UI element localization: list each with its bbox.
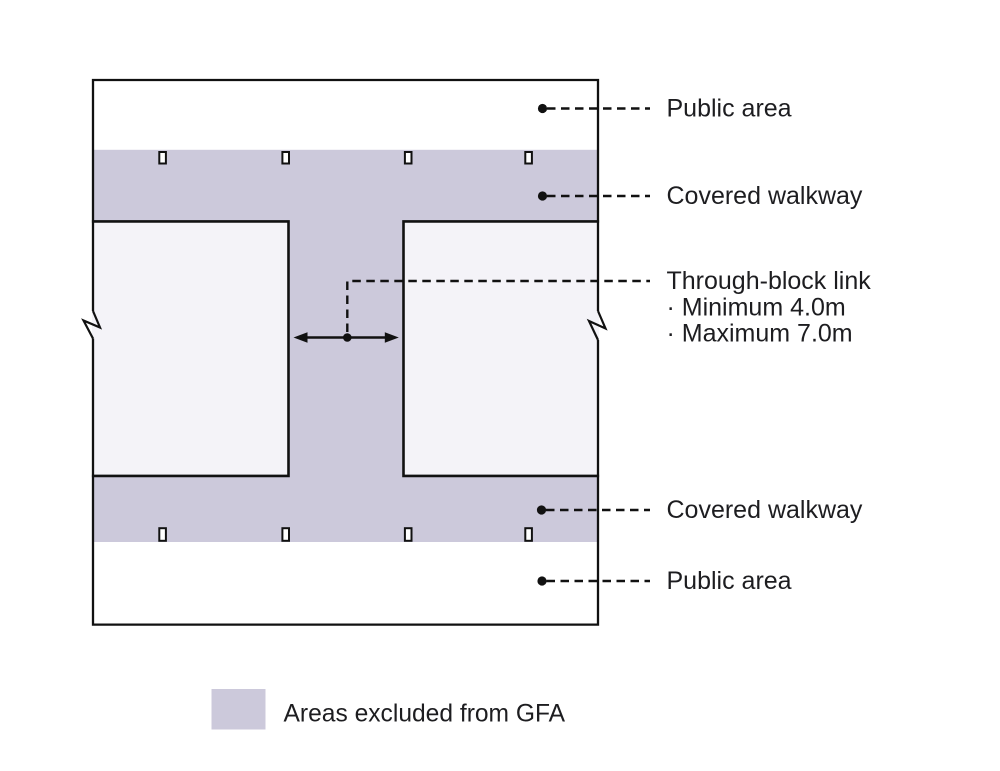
svg-text:Public area: Public area xyxy=(667,95,792,123)
svg-text:Areas excluded from GFA: Areas excluded from GFA xyxy=(284,701,566,728)
svg-text:· Maximum 7.0m: · Maximum 7.0m xyxy=(667,320,853,348)
svg-text:Covered walkway: Covered walkway xyxy=(667,182,863,210)
svg-text:Through-block link: Through-block link xyxy=(667,267,872,295)
svg-text:· Minimum 4.0m: · Minimum 4.0m xyxy=(667,294,846,322)
svg-text:Covered walkway: Covered walkway xyxy=(667,496,863,524)
svg-text:Public area: Public area xyxy=(667,567,792,595)
